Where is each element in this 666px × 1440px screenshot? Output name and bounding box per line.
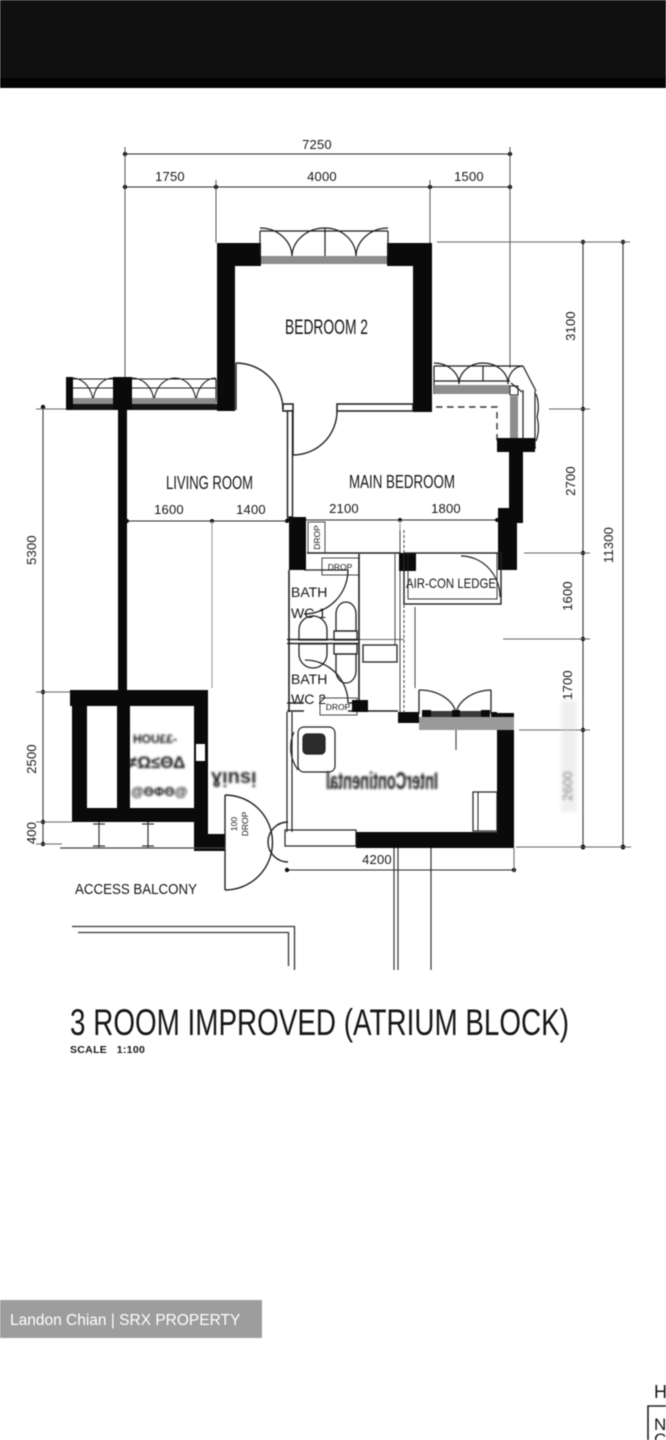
svg-text:100: 100 [229,817,239,831]
svg-text:3 ROOM IMPROVED (ATRIUM BLOCK): 3 ROOM IMPROVED (ATRIUM BLOCK) [70,1002,569,1043]
svg-text:1600: 1600 [154,502,184,517]
svg-text:BEDROOM 2: BEDROOM 2 [285,316,368,339]
svg-text:2700: 2700 [563,466,578,496]
svg-text:DROP: DROP [312,525,322,550]
svg-text:H: H [654,1382,666,1402]
svg-text:BATH: BATH [291,584,327,600]
svg-text:DROP: DROP [326,702,351,712]
svg-text:≠Ω≤ΘΔ: ≠Ω≤ΘΔ [128,753,185,772]
svg-text:1500: 1500 [454,169,484,184]
svg-text:C: C [654,1430,666,1440]
svg-text:Landon Chian | SRX PROPERTY: Landon Chian | SRX PROPERTY [10,1312,240,1329]
svg-text:WC 2: WC 2 [291,691,326,707]
svg-text:BATH: BATH [291,671,327,687]
svg-text:1600: 1600 [560,581,575,611]
svg-text:5300: 5300 [24,535,39,565]
svg-text:1700: 1700 [560,670,575,700]
svg-text:SCALE 1:100: SCALE 1:100 [70,1044,145,1056]
svg-text:3100: 3100 [563,311,578,341]
svg-text:400: 400 [24,822,39,844]
svg-text:2500: 2500 [24,744,39,774]
svg-text:DROP: DROP [240,811,250,836]
svg-text:@ΘΦΘ@: @ΘΦΘ@ [131,784,187,799]
svg-text:1400: 1400 [236,502,266,517]
svg-text:1750: 1750 [155,169,185,184]
svg-text:4000: 4000 [307,169,337,184]
svg-text:ɣᴉnsᴉ: ɣᴉnsᴉ [211,766,257,788]
svg-text:2100: 2100 [329,501,359,516]
svg-text:1800: 1800 [431,501,461,516]
svg-text:ACCESS BALCONY: ACCESS BALCONY [75,881,197,898]
svg-text:HOU££-: HOU££- [133,732,177,746]
svg-text:7250: 7250 [302,137,332,152]
svg-text:11300: 11300 [601,527,616,563]
svg-text:InterContinental: InterContinental [326,768,438,795]
svg-text:LIVING ROOM: LIVING ROOM [166,473,253,493]
svg-text:MAIN BEDROOM: MAIN BEDROOM [349,472,455,492]
svg-text:AIR-CON LEDGE: AIR-CON LEDGE [406,575,496,591]
svg-text:4200: 4200 [362,852,392,867]
